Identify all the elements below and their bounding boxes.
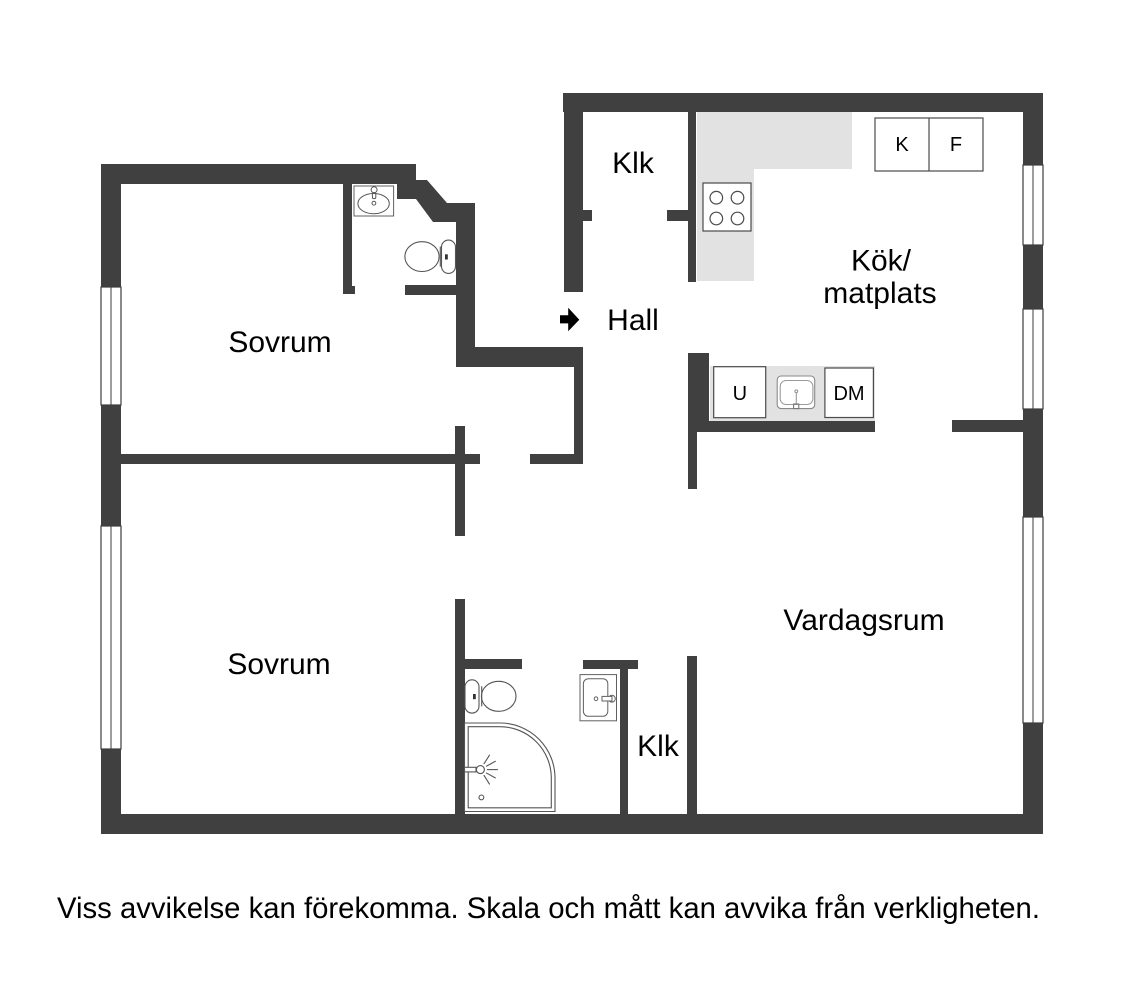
svg-text:Klk: Klk (612, 147, 655, 180)
svg-text:Viss avvikelse kan förekomma.: Viss avvikelse kan förekomma. Skala och … (57, 892, 1040, 925)
svg-text:Sovrum: Sovrum (227, 648, 330, 681)
svg-text:Klk: Klk (637, 730, 680, 763)
svg-text:Hall: Hall (607, 304, 659, 337)
svg-text:Kök/: Kök/ (851, 245, 912, 278)
svg-text:Sovrum: Sovrum (228, 326, 331, 359)
svg-text:U: U (733, 383, 747, 405)
svg-text:Vardagsrum: Vardagsrum (783, 604, 944, 637)
svg-text:matplats: matplats (823, 277, 936, 310)
svg-text:K: K (895, 134, 909, 156)
svg-text:F: F (950, 134, 962, 156)
svg-text:DM: DM (833, 383, 864, 405)
